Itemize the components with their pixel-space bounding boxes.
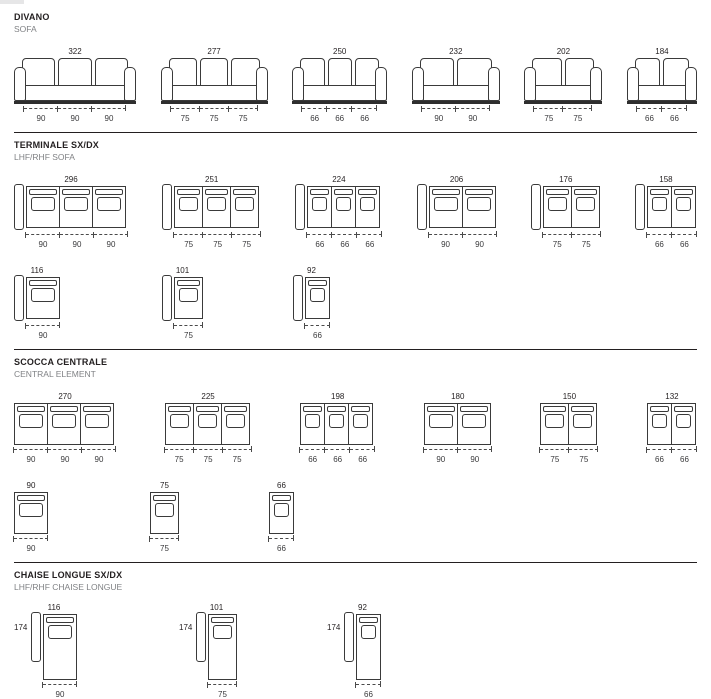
seat-module bbox=[457, 403, 491, 445]
seat-row bbox=[305, 277, 330, 319]
sofa-top-diagram bbox=[196, 614, 237, 680]
armrest-left-shape bbox=[14, 184, 24, 230]
dimension-segment bbox=[569, 449, 598, 453]
seat-module bbox=[571, 186, 600, 228]
dimension-block: 909090 bbox=[26, 230, 128, 249]
dimension-line bbox=[208, 684, 237, 688]
backrest-bar bbox=[650, 189, 669, 195]
seat-labels-row: 90 bbox=[26, 329, 60, 340]
dimension-segment bbox=[26, 234, 60, 238]
back-cushion-row bbox=[300, 58, 379, 88]
seat-cushion bbox=[652, 197, 667, 211]
chaise-wrapper: 17411690 bbox=[14, 603, 77, 699]
seat-row bbox=[43, 614, 77, 680]
seat-width-label: 90 bbox=[43, 688, 77, 699]
back-cushion bbox=[58, 58, 91, 88]
total-width-label: 176 bbox=[559, 175, 572, 184]
dimension-line bbox=[647, 449, 697, 453]
dimension-block: 666666 bbox=[307, 230, 382, 249]
sofa-unit: 224666666 bbox=[295, 169, 382, 249]
unit-column: 2329090 bbox=[412, 47, 500, 123]
dimension-segment bbox=[24, 108, 58, 112]
seat-labels-row: 9090 bbox=[422, 112, 490, 123]
seat-module bbox=[230, 186, 259, 228]
dimension-block: 666666 bbox=[300, 445, 375, 464]
seat-cushion bbox=[676, 414, 691, 428]
back-cushion bbox=[95, 58, 128, 88]
seat-row bbox=[300, 403, 373, 445]
seat-width-label: 75 bbox=[200, 112, 229, 123]
dimension-segment bbox=[58, 108, 92, 112]
back-cushion-row bbox=[22, 58, 128, 88]
unit-column: 11690 bbox=[14, 266, 60, 340]
seat-labels-row: 6666 bbox=[647, 453, 697, 464]
backrest-bar bbox=[233, 189, 256, 195]
dimension-segment bbox=[208, 684, 237, 688]
seat-cushion bbox=[652, 414, 667, 428]
total-width-label: 92 bbox=[358, 603, 367, 612]
seat-module bbox=[221, 403, 250, 445]
backrest-bar bbox=[308, 280, 327, 286]
dimension-line bbox=[174, 325, 203, 329]
dimension-segment bbox=[94, 234, 128, 238]
dimension-line bbox=[171, 108, 258, 112]
total-width-label: 75 bbox=[160, 481, 169, 490]
seat-cushion bbox=[64, 197, 88, 211]
seat-labels-row: 9090 bbox=[429, 238, 497, 249]
total-width-label: 202 bbox=[557, 47, 570, 56]
sofa-front-diagram bbox=[292, 58, 387, 104]
sofa-front-diagram bbox=[627, 58, 697, 104]
dimension-segment bbox=[543, 234, 572, 238]
seat-base bbox=[17, 85, 133, 101]
seat-cushion bbox=[19, 503, 43, 517]
backrest-bar bbox=[196, 406, 219, 412]
seat-base bbox=[527, 85, 599, 101]
seat-cushion bbox=[213, 625, 232, 639]
dimension-block: 90 bbox=[14, 534, 48, 553]
seat-module bbox=[150, 492, 179, 534]
backrest-bar bbox=[153, 495, 176, 501]
seat-labels-row: 7575 bbox=[540, 453, 598, 464]
seat-width-label: 75 bbox=[563, 112, 592, 123]
seat-cushion bbox=[31, 288, 55, 302]
seat-module bbox=[269, 492, 294, 534]
dimension-segment bbox=[572, 234, 601, 238]
sofa-front-diagram bbox=[524, 58, 602, 104]
sofa-front-diagram bbox=[161, 58, 268, 104]
seat-width-label: 90 bbox=[14, 453, 48, 464]
seat-width-label: 66 bbox=[662, 112, 687, 123]
armrest-left-shape bbox=[293, 275, 303, 321]
armrest-left-shape bbox=[14, 67, 26, 101]
sofa-top-diagram bbox=[14, 186, 126, 230]
backrest-bar bbox=[432, 189, 460, 195]
seat-module bbox=[647, 186, 672, 228]
sofa-top-diagram bbox=[150, 492, 179, 534]
sofa-top-diagram bbox=[162, 186, 259, 230]
back-cushion bbox=[420, 58, 455, 88]
seat-base bbox=[415, 85, 497, 101]
seat-cushion bbox=[274, 503, 289, 517]
seat-width-label: 66 bbox=[356, 688, 381, 699]
seat-labels-row: 6666 bbox=[647, 238, 697, 249]
backrest-bar bbox=[427, 406, 455, 412]
sofa-top-diagram bbox=[531, 186, 600, 230]
seat-cushion bbox=[545, 414, 564, 428]
seat-width-label: 66 bbox=[327, 112, 352, 123]
depth-label: 174 bbox=[327, 603, 344, 699]
seat-cushion bbox=[170, 414, 189, 428]
armrest-left-shape bbox=[14, 275, 24, 321]
armrest-left-shape bbox=[417, 184, 427, 230]
seat-width-label: 75 bbox=[165, 453, 194, 464]
seat-module bbox=[43, 614, 77, 680]
dimension-segment bbox=[92, 108, 126, 112]
seat-width-label: 75 bbox=[569, 453, 598, 464]
seat-module bbox=[174, 186, 203, 228]
seat-row bbox=[647, 403, 696, 445]
back-cushion bbox=[22, 58, 55, 88]
seat-labels-row: 757575 bbox=[171, 112, 258, 123]
seat-cushion bbox=[573, 414, 592, 428]
seat-labels-row: 66 bbox=[305, 329, 330, 340]
seat-module bbox=[165, 403, 194, 445]
dimension-block: 757575 bbox=[171, 104, 258, 123]
seat-width-label: 66 bbox=[352, 112, 377, 123]
sofa-top-diagram bbox=[424, 403, 491, 445]
sofa-unit: 322909090 bbox=[14, 41, 136, 123]
dimension-line bbox=[424, 449, 492, 453]
seat-cushion bbox=[48, 625, 72, 639]
backrest-bar bbox=[546, 189, 569, 195]
armrest-left-shape bbox=[412, 67, 424, 101]
total-width-label: 322 bbox=[68, 47, 81, 56]
dimension-block: 66 bbox=[305, 321, 330, 340]
dimension-segment bbox=[269, 538, 294, 542]
seat-width-label: 90 bbox=[463, 238, 497, 249]
seat-width-label: 75 bbox=[229, 112, 258, 123]
seat-row bbox=[14, 403, 114, 445]
diagram-row: 17411690174101751749266 bbox=[14, 603, 697, 699]
sofa-top-diagram bbox=[269, 492, 294, 534]
seat-width-label: 75 bbox=[534, 112, 563, 123]
seat-labels-row: 7575 bbox=[543, 238, 601, 249]
seat-row bbox=[26, 186, 126, 228]
seat-width-label: 90 bbox=[94, 238, 128, 249]
unit-column: 251757575 bbox=[162, 175, 261, 249]
dimension-segment bbox=[327, 108, 352, 112]
sofa-unit: 2069090 bbox=[417, 169, 497, 249]
section-header: DIVANOSOFA bbox=[14, 12, 697, 34]
seat-cushion bbox=[676, 197, 691, 211]
seat-module bbox=[307, 186, 332, 228]
dimension-line bbox=[174, 234, 261, 238]
back-cushion bbox=[457, 58, 492, 88]
dimension-segment bbox=[540, 449, 569, 453]
unit-column: 9266 bbox=[344, 603, 381, 699]
dimension-segment bbox=[352, 108, 377, 112]
total-width-label: 224 bbox=[332, 175, 345, 184]
total-width-label: 132 bbox=[665, 392, 678, 401]
seat-module bbox=[208, 614, 237, 680]
section-header: TERMINALE SX/DXLHF/RHF SOFA bbox=[14, 140, 697, 162]
dimension-block: 90 bbox=[26, 321, 60, 340]
seat-module bbox=[305, 277, 330, 319]
section-terminale: TERMINALE SX/DXLHF/RHF SOFA2969090902517… bbox=[14, 132, 697, 340]
seat-width-label: 66 bbox=[672, 453, 697, 464]
seat-module bbox=[26, 186, 60, 228]
total-width-label: 206 bbox=[450, 175, 463, 184]
seat-module bbox=[356, 614, 381, 680]
seat-width-label: 90 bbox=[26, 238, 60, 249]
total-width-label: 184 bbox=[655, 47, 668, 56]
dimension-line bbox=[150, 538, 179, 542]
unit-column: 225757575 bbox=[165, 392, 252, 464]
base-bar bbox=[412, 101, 500, 104]
armrest-left-shape bbox=[531, 184, 541, 230]
dimension-segment bbox=[150, 538, 179, 542]
seat-base bbox=[295, 85, 384, 101]
sofa-unit: 251757575 bbox=[162, 169, 261, 249]
seat-module bbox=[462, 186, 496, 228]
seat-row bbox=[165, 403, 250, 445]
dimension-segment bbox=[429, 234, 463, 238]
dimension-segment bbox=[300, 449, 325, 453]
armrest-left-shape bbox=[524, 67, 536, 101]
seat-row bbox=[174, 277, 203, 319]
dimension-segment bbox=[223, 449, 252, 453]
unit-column: 2069090 bbox=[417, 175, 497, 249]
unit-column: 2027575 bbox=[524, 47, 602, 123]
seat-module bbox=[14, 492, 48, 534]
dimension-segment bbox=[305, 325, 330, 329]
seat-cushion bbox=[576, 197, 595, 211]
unit-column: 322909090 bbox=[14, 47, 136, 123]
dimension-segment bbox=[662, 108, 687, 112]
seat-width-label: 90 bbox=[92, 112, 126, 123]
sofa-top-diagram bbox=[300, 403, 373, 445]
sofa-unit: 2329090 bbox=[412, 41, 500, 123]
dimension-block: 66 bbox=[356, 680, 381, 699]
dimension-line bbox=[534, 108, 592, 112]
total-width-label: 101 bbox=[176, 266, 189, 275]
dimension-segment bbox=[26, 325, 60, 329]
seat-width-label: 75 bbox=[203, 238, 232, 249]
dimension-segment bbox=[672, 449, 697, 453]
seat-width-label: 90 bbox=[458, 453, 492, 464]
seat-width-label: 66 bbox=[325, 453, 350, 464]
sofa-top-diagram bbox=[31, 614, 77, 680]
total-width-label: 270 bbox=[58, 392, 71, 401]
seat-width-label: 90 bbox=[24, 112, 58, 123]
dimension-segment bbox=[14, 449, 48, 453]
seat-row bbox=[14, 492, 48, 534]
backrest-bar bbox=[29, 280, 57, 286]
seat-width-label: 66 bbox=[305, 329, 330, 340]
armrest-right-shape bbox=[375, 67, 387, 101]
backrest-bar bbox=[272, 495, 291, 501]
backrest-bar bbox=[674, 189, 693, 195]
dimension-line bbox=[422, 108, 490, 112]
seat-labels-row: 909090 bbox=[14, 453, 116, 464]
seat-width-label: 75 bbox=[572, 238, 601, 249]
total-width-label: 116 bbox=[48, 603, 61, 612]
backrest-bar bbox=[465, 189, 493, 195]
dimension-block: 6666 bbox=[637, 104, 687, 123]
armrest-left-shape bbox=[161, 67, 173, 101]
unit-column: 10175 bbox=[162, 266, 203, 340]
seat-module bbox=[647, 403, 672, 445]
unit-column: 1809090 bbox=[424, 392, 492, 464]
total-width-label: 150 bbox=[563, 392, 576, 401]
seat-cushion bbox=[336, 197, 351, 211]
depth-label: 174 bbox=[179, 603, 196, 699]
seat-cushion bbox=[179, 197, 198, 211]
backrest-bar bbox=[205, 189, 228, 195]
armrest-left-shape bbox=[31, 612, 41, 662]
seat-width-label: 90 bbox=[456, 112, 490, 123]
seat-width-label: 66 bbox=[647, 238, 672, 249]
unit-column: 270909090 bbox=[14, 392, 116, 464]
seat-width-label: 90 bbox=[48, 453, 82, 464]
dimension-block: 9090 bbox=[429, 230, 497, 249]
dimension-block: 75 bbox=[208, 680, 237, 699]
sofa-top-diagram bbox=[540, 403, 597, 445]
backrest-bar bbox=[327, 406, 346, 412]
diagram-row: 2709090902257575751986666661809090150757… bbox=[14, 386, 697, 464]
seat-width-label: 75 bbox=[171, 112, 200, 123]
seat-row bbox=[647, 186, 696, 228]
armrest-right-shape bbox=[590, 67, 602, 101]
sofa-unit: 17411690 bbox=[14, 603, 77, 699]
backrest-bar bbox=[543, 406, 566, 412]
seat-width-label: 75 bbox=[174, 329, 203, 340]
sofa-unit: 277757575 bbox=[161, 41, 268, 123]
dimension-segment bbox=[60, 234, 94, 238]
dimension-block: 7575 bbox=[534, 104, 592, 123]
backrest-bar bbox=[177, 189, 200, 195]
backrest-bar bbox=[95, 189, 123, 195]
seat-labels-row: 909090 bbox=[24, 112, 126, 123]
total-width-label: 232 bbox=[449, 47, 462, 56]
sofa-unit: 1767575 bbox=[531, 169, 601, 249]
seat-row bbox=[174, 186, 259, 228]
seat-labels-row: 757575 bbox=[174, 238, 261, 249]
dimension-segment bbox=[307, 234, 332, 238]
seat-module bbox=[47, 403, 81, 445]
dimension-block: 75 bbox=[150, 534, 179, 553]
section-subtitle: LHF/RHF CHAISE LONGUE bbox=[14, 582, 697, 592]
seat-labels-row: 666666 bbox=[302, 112, 377, 123]
seat-row bbox=[356, 614, 381, 680]
backrest-bar bbox=[650, 406, 669, 412]
dimension-block: 7575 bbox=[540, 445, 598, 464]
seat-cushion bbox=[361, 625, 376, 639]
armrest-left-shape bbox=[162, 275, 172, 321]
section-header: CHAISE LONGUE SX/DXLHF/RHF CHAISE LONGUE bbox=[14, 570, 697, 592]
total-width-label: 92 bbox=[307, 266, 316, 275]
dimension-segment bbox=[229, 108, 258, 112]
seat-cushion bbox=[31, 197, 55, 211]
seat-width-label: 66 bbox=[672, 238, 697, 249]
seat-cushion bbox=[462, 414, 486, 428]
spec-sheet-page: DIVANOSOFA322909090277757575250666666232… bbox=[0, 0, 711, 699]
dimension-segment bbox=[332, 234, 357, 238]
sofa-unit: 198666666 bbox=[300, 386, 375, 464]
seat-width-label: 66 bbox=[637, 112, 662, 123]
seat-width-label: 66 bbox=[357, 238, 382, 249]
diagram-row: 2969090902517575752246666662069090176757… bbox=[14, 169, 697, 249]
dimension-segment bbox=[422, 108, 456, 112]
sofa-unit: 10175 bbox=[162, 260, 203, 340]
dimension-block: 9090 bbox=[424, 445, 492, 464]
base-bar bbox=[292, 101, 387, 104]
dimension-block: 7575 bbox=[543, 230, 601, 249]
sofa-unit: 9266 bbox=[293, 260, 330, 340]
seat-width-label: 75 bbox=[223, 453, 252, 464]
seat-labels-row: 90 bbox=[43, 688, 77, 699]
dimension-segment bbox=[174, 325, 203, 329]
unit-column: 6666 bbox=[269, 481, 294, 553]
dimension-segment bbox=[165, 449, 194, 453]
seat-module bbox=[540, 403, 569, 445]
seat-width-label: 75 bbox=[194, 453, 223, 464]
seat-width-label: 66 bbox=[269, 542, 294, 553]
dimension-segment bbox=[171, 108, 200, 112]
seat-module bbox=[26, 277, 60, 319]
backrest-bar bbox=[46, 617, 74, 623]
seat-cushion bbox=[97, 197, 121, 211]
seat-row bbox=[429, 186, 496, 228]
dimension-line bbox=[305, 325, 330, 329]
sofa-top-diagram bbox=[647, 403, 696, 445]
dimension-segment bbox=[647, 449, 672, 453]
dimension-line bbox=[540, 449, 598, 453]
total-width-label: 101 bbox=[210, 603, 223, 612]
backrest-bar bbox=[358, 189, 377, 195]
seat-width-label: 66 bbox=[307, 238, 332, 249]
unit-column: 7575 bbox=[150, 481, 179, 553]
seat-width-label: 66 bbox=[647, 453, 672, 464]
dimension-line bbox=[637, 108, 687, 112]
seat-cushion bbox=[198, 414, 217, 428]
unit-column: 198666666 bbox=[300, 392, 375, 464]
seat-labels-row: 75 bbox=[150, 542, 179, 553]
unit-column: 224666666 bbox=[295, 175, 382, 249]
diagram-row: 909075756666 bbox=[14, 475, 697, 553]
sofa-top-diagram bbox=[162, 277, 203, 321]
dimension-segment bbox=[14, 538, 48, 542]
dimension-segment bbox=[647, 234, 672, 238]
seat-cushion bbox=[467, 197, 491, 211]
unit-column: 11690 bbox=[31, 603, 77, 699]
base-bar bbox=[627, 101, 697, 104]
armrest-right-shape bbox=[685, 67, 697, 101]
dimension-line bbox=[14, 538, 48, 542]
sofa-unit: 7575 bbox=[150, 475, 179, 553]
seat-width-label: 66 bbox=[350, 453, 375, 464]
sofa-top-diagram bbox=[293, 277, 330, 321]
dimension-segment bbox=[672, 234, 697, 238]
armrest-left-shape bbox=[344, 612, 354, 662]
diagram-row: 11690101759266 bbox=[14, 260, 697, 340]
armrest-left-shape bbox=[196, 612, 206, 662]
sofa-top-diagram bbox=[14, 403, 114, 445]
seat-width-label: 90 bbox=[422, 112, 456, 123]
seat-width-label: 90 bbox=[424, 453, 458, 464]
dimension-segment bbox=[356, 684, 381, 688]
